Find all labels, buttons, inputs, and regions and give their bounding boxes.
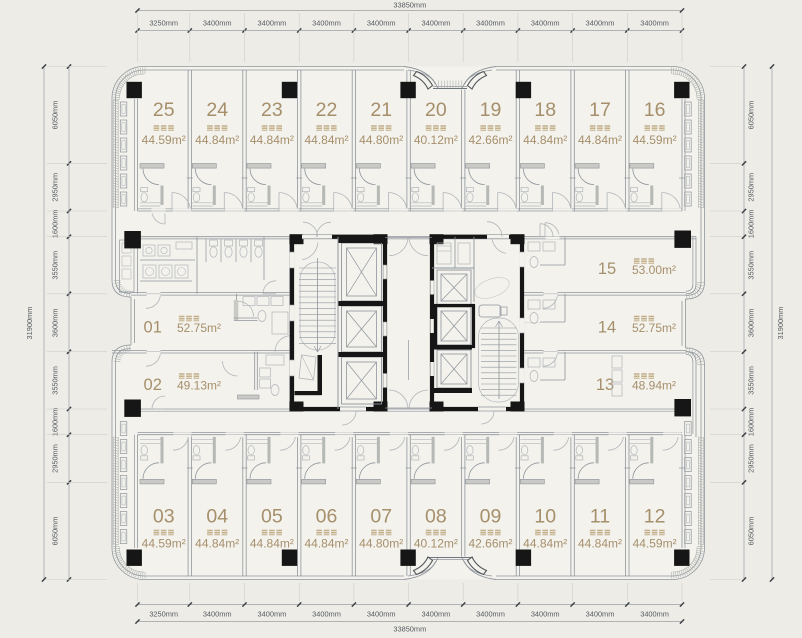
svg-text:07: 07 [370,506,392,528]
svg-text:53.00m²: 53.00m² [632,263,676,277]
svg-text:11: 11 [590,506,610,528]
svg-text:3400mm: 3400mm [312,19,341,28]
svg-text:44.59m²: 44.59m² [142,537,186,551]
svg-text:52.75m²: 52.75m² [177,321,221,335]
svg-text:3400mm: 3400mm [640,610,669,619]
svg-text:2950mm: 2950mm [747,173,756,202]
svg-text:44.80m²: 44.80m² [359,537,403,551]
svg-text:3550mm: 3550mm [747,251,756,280]
svg-text:44.84m²: 44.84m² [523,537,567,551]
svg-text:42.66m²: 42.66m² [468,133,512,147]
svg-text:01: 01 [144,319,162,337]
svg-text:44.84m²: 44.84m² [578,133,622,147]
svg-text:44.84m²: 44.84m² [195,133,239,147]
svg-text:20: 20 [425,99,447,121]
svg-text:44.84m²: 44.84m² [250,133,294,147]
svg-text:3400mm: 3400mm [312,610,341,619]
svg-text:2950mm: 2950mm [51,444,60,473]
svg-text:31900mm: 31900mm [25,307,34,340]
svg-text:44.84m²: 44.84m² [578,537,622,551]
svg-text:3400mm: 3400mm [203,19,232,28]
svg-text:04: 04 [206,506,228,528]
svg-text:31900mm: 31900mm [776,307,785,340]
svg-text:1600mm: 1600mm [51,209,60,238]
svg-text:44.80m²: 44.80m² [359,133,403,147]
svg-text:44.84m²: 44.84m² [304,537,348,551]
svg-text:44.84m²: 44.84m² [304,133,348,147]
svg-text:22: 22 [316,99,338,121]
svg-text:3400mm: 3400mm [476,610,505,619]
svg-text:40.12m²: 40.12m² [414,133,458,147]
svg-text:09: 09 [480,506,502,528]
svg-text:52.75m²: 52.75m² [632,321,676,335]
svg-text:05: 05 [261,506,283,528]
svg-text:12: 12 [644,506,666,528]
svg-text:3250mm: 3250mm [149,19,178,28]
svg-text:3400mm: 3400mm [586,610,615,619]
svg-text:33850mm: 33850mm [393,1,426,10]
svg-text:23: 23 [261,99,283,121]
svg-text:6050mm: 6050mm [747,101,756,130]
svg-text:3400mm: 3400mm [531,19,560,28]
svg-text:3400mm: 3400mm [203,610,232,619]
svg-text:03: 03 [153,506,175,528]
svg-text:44.59m²: 44.59m² [633,133,677,147]
svg-text:14: 14 [598,319,616,337]
svg-text:10: 10 [534,506,556,528]
svg-text:15: 15 [598,260,616,278]
svg-text:18: 18 [534,99,556,121]
svg-text:3400mm: 3400mm [586,19,615,28]
svg-text:3400mm: 3400mm [476,19,505,28]
svg-text:17: 17 [589,99,611,121]
svg-text:1600mm: 1600mm [747,209,756,238]
svg-text:44.59m²: 44.59m² [633,537,677,551]
svg-text:44.59m²: 44.59m² [142,133,186,147]
svg-text:44.84m²: 44.84m² [523,133,567,147]
svg-text:3400mm: 3400mm [531,610,560,619]
svg-text:40.12m²: 40.12m² [414,537,458,551]
svg-text:08: 08 [425,506,447,528]
svg-text:3400mm: 3400mm [258,610,287,619]
svg-text:02: 02 [144,376,162,394]
svg-text:49.13m²: 49.13m² [177,379,221,393]
svg-text:42.66m²: 42.66m² [468,537,512,551]
svg-text:3600mm: 3600mm [51,308,60,337]
svg-text:3400mm: 3400mm [422,19,451,28]
svg-text:3400mm: 3400mm [258,19,287,28]
svg-text:3600mm: 3600mm [747,308,756,337]
svg-text:3250mm: 3250mm [149,610,178,619]
svg-text:3550mm: 3550mm [51,251,60,280]
svg-text:1600mm: 1600mm [51,408,60,437]
svg-text:3400mm: 3400mm [367,19,396,28]
svg-text:44.84m²: 44.84m² [250,537,294,551]
svg-text:06: 06 [316,506,338,528]
svg-text:6050mm: 6050mm [747,517,756,546]
svg-text:44.84m²: 44.84m² [195,537,239,551]
svg-text:2950mm: 2950mm [51,173,60,202]
svg-text:1600mm: 1600mm [747,408,756,437]
svg-text:33850mm: 33850mm [393,625,426,634]
svg-text:48.94m²: 48.94m² [632,379,676,393]
svg-text:3400mm: 3400mm [367,610,396,619]
svg-text:2950mm: 2950mm [747,444,756,473]
svg-text:16: 16 [644,99,666,121]
svg-text:19: 19 [480,99,502,121]
svg-text:3400mm: 3400mm [422,610,451,619]
svg-text:3550mm: 3550mm [747,366,756,395]
svg-text:24: 24 [206,99,228,121]
svg-text:3550mm: 3550mm [51,366,60,395]
svg-text:13: 13 [596,376,614,394]
svg-text:25: 25 [153,99,175,121]
svg-text:6050mm: 6050mm [51,101,60,130]
svg-text:3400mm: 3400mm [640,19,669,28]
svg-text:21: 21 [370,99,392,121]
svg-text:6050mm: 6050mm [51,517,60,546]
